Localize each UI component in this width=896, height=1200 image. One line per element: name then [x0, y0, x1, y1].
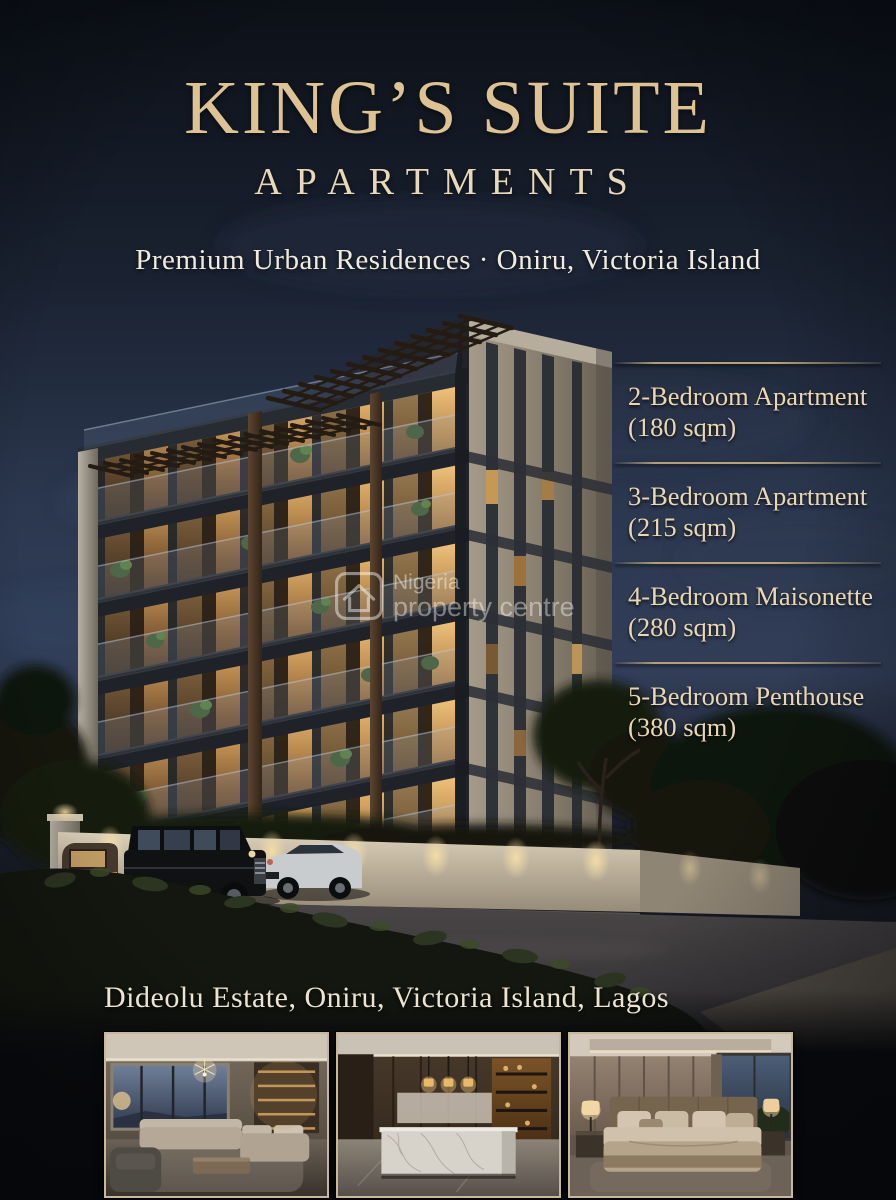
photo-living-room	[104, 1032, 329, 1198]
watermark: Nigeria property centre	[334, 571, 575, 621]
unit-size: (380 sqm)	[628, 712, 881, 743]
unit-name: 4-Bedroom Maisonette	[628, 581, 881, 612]
unit-item: 5-Bedroom Penthouse (380 sqm)	[615, 664, 881, 762]
tagline: Premium Urban Residences · Oniru, Victor…	[0, 244, 896, 277]
unit-size: (280 sqm)	[628, 612, 881, 643]
unit-item: 4-Bedroom Maisonette (280 sqm)	[615, 564, 881, 662]
address-line: Dideolu Estate, Oniru, Victoria Island, …	[104, 981, 669, 1015]
unit-item: 2-Bedroom Apartment (180 sqm)	[615, 364, 881, 462]
unit-item: 3-Bedroom Apartment (215 sqm)	[615, 464, 881, 562]
unit-name: 2-Bedroom Apartment	[628, 381, 881, 412]
watermark-line1: Nigeria	[393, 572, 575, 594]
page-subtitle: APARTMENTS	[0, 160, 896, 204]
poster-header: KING’S SUITE APARTMENTS Premium Urban Re…	[0, 70, 896, 277]
property-poster: KING’S SUITE APARTMENTS Premium Urban Re…	[0, 0, 896, 1200]
watermark-line2: property centre	[393, 594, 575, 621]
pendant-lights-icon	[421, 1056, 476, 1092]
interior-photo-strip	[104, 1032, 793, 1198]
unit-name: 5-Bedroom Penthouse	[628, 681, 881, 712]
unit-size: (180 sqm)	[628, 412, 881, 443]
photo-bedroom	[568, 1032, 793, 1198]
chandelier-icon	[193, 1058, 217, 1082]
unit-size: (215 sqm)	[628, 512, 881, 543]
unit-list: 2-Bedroom Apartment (180 sqm) 3-Bedroom …	[615, 362, 881, 762]
house-icon	[334, 571, 384, 621]
page-title: KING’S SUITE	[0, 70, 896, 146]
photo-kitchen	[336, 1032, 561, 1198]
unit-name: 3-Bedroom Apartment	[628, 481, 881, 512]
